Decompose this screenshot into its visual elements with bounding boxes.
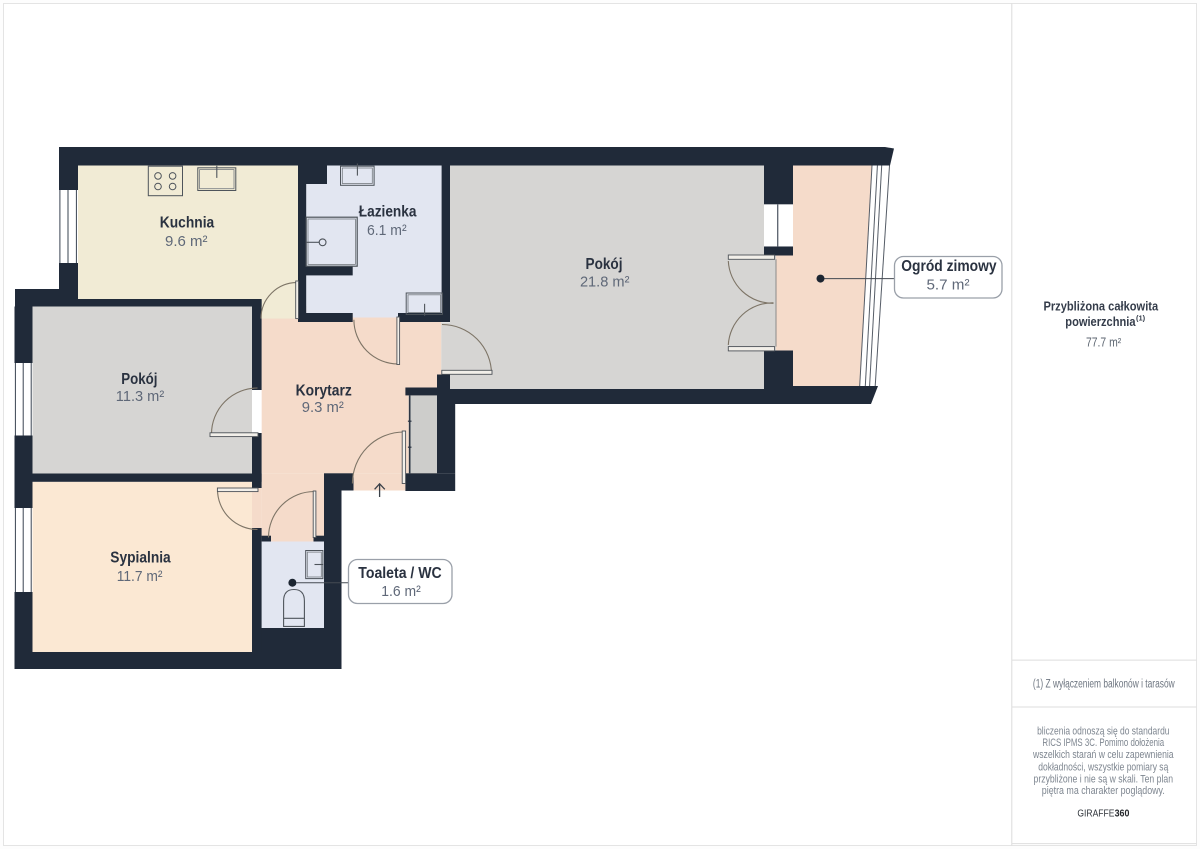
svg-text:Pokój: Pokój (121, 371, 157, 388)
svg-text:1.6 m²: 1.6 m² (381, 583, 421, 600)
svg-text:Łazienka: Łazienka (359, 204, 417, 221)
svg-text:GIRAFFE: GIRAFFE (1077, 807, 1114, 819)
svg-text:11.7 m²: 11.7 m² (117, 568, 163, 585)
svg-text:5.7 m²: 5.7 m² (927, 277, 970, 294)
svg-text:dokładności, wszystkie pomiary: dokładności, wszystkie pomiary są (1038, 762, 1169, 774)
svg-text:Przybliżona całkowita: Przybliżona całkowita (1043, 299, 1158, 314)
svg-text:Korytarz: Korytarz (296, 383, 352, 400)
svg-text:9.3 m²: 9.3 m² (302, 399, 344, 416)
svg-text:Sypialnia: Sypialnia (110, 550, 170, 567)
svg-text:piętra ma charakter poglądowy.: piętra ma charakter poglądowy. (1042, 785, 1165, 797)
svg-text:(1) Z wyłączeniem balkonów i t: (1) Z wyłączeniem balkonów i tarasów (1033, 678, 1175, 690)
svg-text:Ogród zimowy: Ogród zimowy (901, 258, 996, 275)
svg-text:9.6 m²: 9.6 m² (165, 233, 208, 250)
svg-text:77.7 m²: 77.7 m² (1086, 336, 1121, 350)
svg-text:(1): (1) (1136, 314, 1146, 323)
svg-text:wszelkich starań w celu zapewn: wszelkich starań w celu zapewnienia (1032, 749, 1174, 761)
svg-text:Kuchnia: Kuchnia (160, 214, 214, 231)
svg-text:Toaleta / WC: Toaleta / WC (358, 565, 442, 582)
svg-text:RICS IPMS 3C. Pomimo dołożenia: RICS IPMS 3C. Pomimo dołożenia (1042, 737, 1164, 749)
svg-text:bliczenia odnoszą się do stand: bliczenia odnoszą się do standardu (1037, 725, 1169, 737)
svg-text:360: 360 (1115, 807, 1130, 819)
svg-text:11.3 m²: 11.3 m² (116, 388, 164, 405)
svg-text:powierzchnia: powierzchnia (1065, 314, 1136, 329)
svg-text:21.8 m²: 21.8 m² (580, 274, 630, 291)
svg-text:6.1 m²: 6.1 m² (367, 222, 407, 239)
svg-text:przybliżone i nie są w skali.: przybliżone i nie są w skali. Ten plan (1034, 773, 1174, 785)
svg-text:Pokój: Pokój (586, 256, 623, 273)
